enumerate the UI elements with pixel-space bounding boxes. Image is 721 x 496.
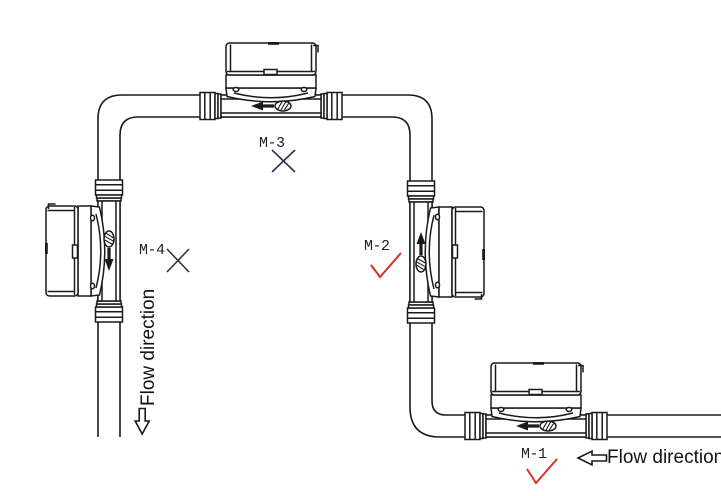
meter-label-m2: M-2 (364, 238, 390, 255)
m4-cross-mark (167, 249, 189, 272)
meter-m4-assembly (45, 180, 123, 322)
meter-label-m4: M-4 (139, 242, 165, 259)
flow-direction-label-left: Flow direction (138, 289, 160, 406)
piping-diagram (0, 0, 721, 496)
flow-direction-label-bottom: Flow direction (607, 447, 721, 469)
meter-m3-assembly (200, 42, 342, 120)
meter-m2-assembly (408, 181, 486, 323)
m3-cross-mark (272, 150, 295, 172)
piping-diagram-canvas: M-3 M-4 M-2 M-1 Flow direction Flow dire… (0, 0, 721, 496)
flow-direction-left-arrow-icon (578, 451, 607, 465)
m2-check-mark (371, 253, 401, 277)
flow-direction-down-arrow-icon (135, 409, 149, 435)
meter-label-m1: M-1 (521, 446, 547, 463)
meter-m1-assembly (465, 362, 607, 440)
meter-label-m3: M-3 (259, 135, 285, 152)
